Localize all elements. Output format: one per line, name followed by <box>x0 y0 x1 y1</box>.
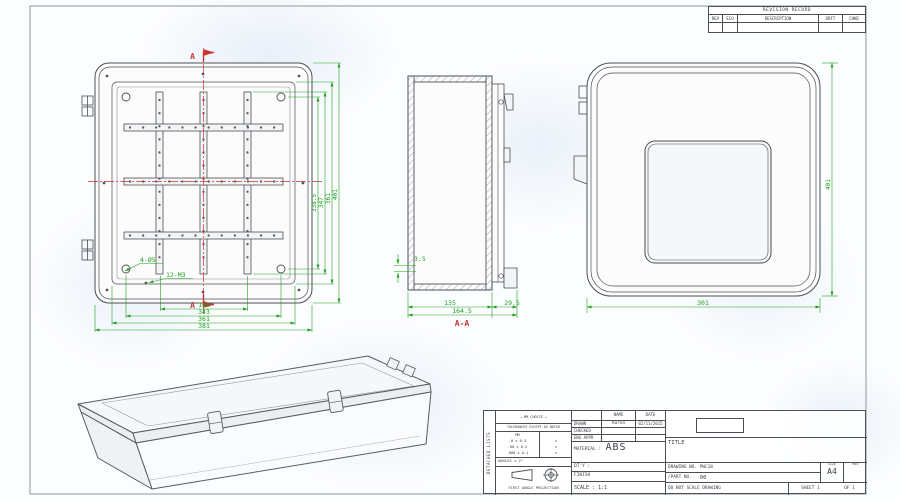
sheet-number: SHEET 1 <box>801 486 820 491</box>
size-value: A4 <box>821 467 843 476</box>
section-marker-a-bottom: A <box>190 301 195 310</box>
part-no-value: 00 <box>700 475 707 481</box>
date-header: DATE <box>636 411 666 421</box>
drawing-no: DRAWING NO. PWC18 <box>666 464 715 471</box>
isometric-view <box>78 356 431 489</box>
eng-appr-label: ENG APPR <box>572 435 601 442</box>
dim-lid-depth: 29.5 <box>504 299 520 307</box>
sheet-of: OF 1 <box>844 486 855 491</box>
detached-lists-label: DETACHED LISTS <box>484 411 495 495</box>
dim-height-1: 338.5 <box>311 194 318 212</box>
revision-record-table: REVISION RECORD REV ECO DESCRIPTION DRFT… <box>708 6 866 33</box>
dim-height-2: 347 <box>318 197 325 208</box>
front-view <box>82 63 312 303</box>
truncated-cone-icon <box>509 468 537 482</box>
finish-label: FINISH <box>572 472 665 479</box>
dim-lid-width: 301 <box>697 299 709 307</box>
chkd-col-header: CHKD <box>843 15 865 22</box>
tolerance-header: TOLERANCES EXCEPT AS NOTED <box>496 424 572 432</box>
angles-tolerance: ANGLES ± 2° <box>496 458 571 464</box>
checked-label: CHECKED <box>572 428 601 435</box>
rev-col-header: REV <box>709 15 723 22</box>
scale-label: SCALE : 1:1 <box>572 485 609 493</box>
material-label: MATERIAL : <box>572 446 603 453</box>
tolerance-mark: ± <box>540 450 572 456</box>
dim-arrow-right-icon: → <box>520 415 522 419</box>
qty-label: QT'Y : <box>572 463 665 470</box>
eco-col-header: ECO <box>723 15 738 22</box>
units-note: MM CHOICE <box>524 415 543 419</box>
name-header: NAME <box>602 411 636 421</box>
rev-label: REV <box>844 463 867 467</box>
dim-height-4: 401 <box>332 189 339 200</box>
section-label: A-A <box>455 319 470 328</box>
revision-table-title: REVISION RECORD <box>709 7 865 15</box>
drawn-label: DRAWN <box>572 421 601 428</box>
title-block: DETACHED LISTS → MM CHOICE ← TOLERANCES … <box>483 410 866 494</box>
drawing-sheet: A A <box>0 0 900 500</box>
back-view <box>574 63 820 296</box>
company-logo-box <box>696 418 744 433</box>
drft-col-header: DRFT <box>819 15 843 22</box>
section-marker-a-top: A <box>190 52 195 61</box>
part-no-label: /PART NO. <box>666 474 694 481</box>
title-label: TITLE <box>666 438 867 447</box>
first-angle-projection-icon <box>543 468 559 482</box>
dim-lid-height: 401 <box>825 179 832 190</box>
dim-arrow-left-icon: ← <box>545 415 547 419</box>
projection-note: FIRST ANGLE PROJECTION <box>496 483 571 493</box>
do-not-scale-note: DO NOT SCALE DRAWING <box>666 485 723 492</box>
dim-wall-thickness: 3.5 <box>414 255 426 263</box>
corner-hole-callout: 4-Ø5 <box>140 256 156 264</box>
drawn-date: 02/11/2015 <box>636 421 666 428</box>
rail-thread-callout: 12-M3 <box>166 271 186 279</box>
material-value: ABS <box>606 442 627 453</box>
drawn-name: Aaron <box>602 421 636 428</box>
dim-flange-width: 381 <box>198 322 210 330</box>
description-col-header: DESCRIPTION <box>738 15 819 22</box>
dim-body-depth: 135 <box>444 299 456 307</box>
tolerance-row: .000 ± 0.1 <box>496 450 539 456</box>
dim-total-depth: 164.5 <box>452 307 472 315</box>
dim-height-3: 361 <box>325 193 332 204</box>
